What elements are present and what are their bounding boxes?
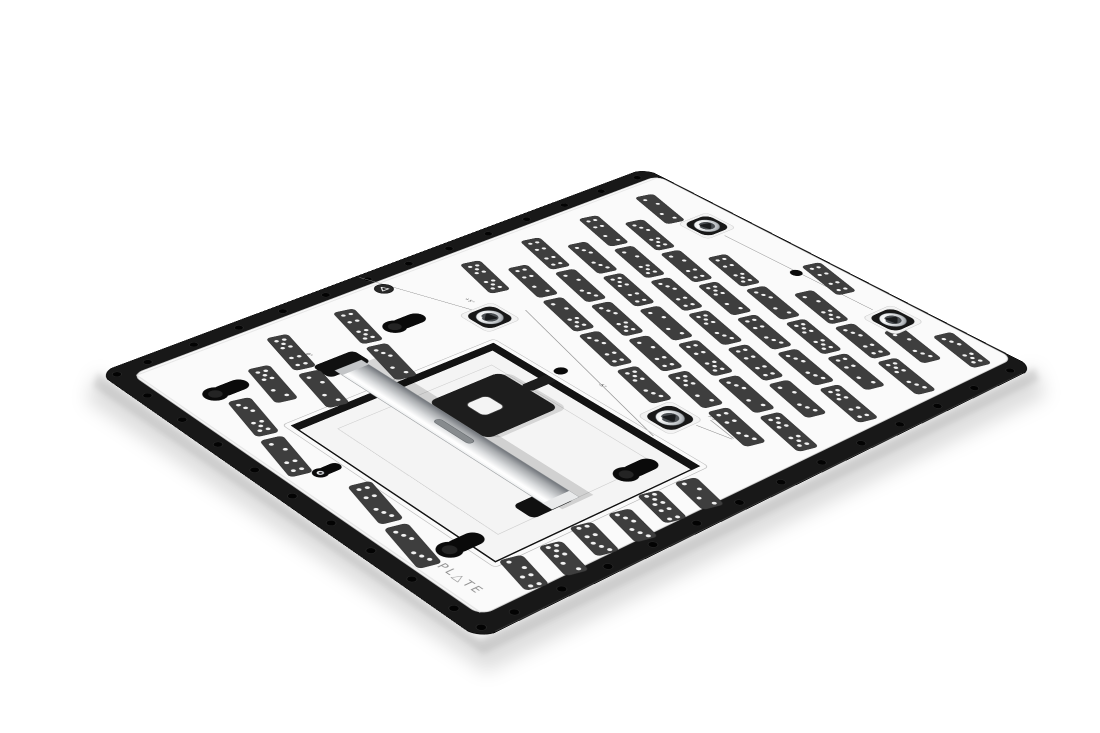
product-photo-stage: 0°+5°-5°-10°7.5°PL△TE	[0, 0, 1100, 733]
